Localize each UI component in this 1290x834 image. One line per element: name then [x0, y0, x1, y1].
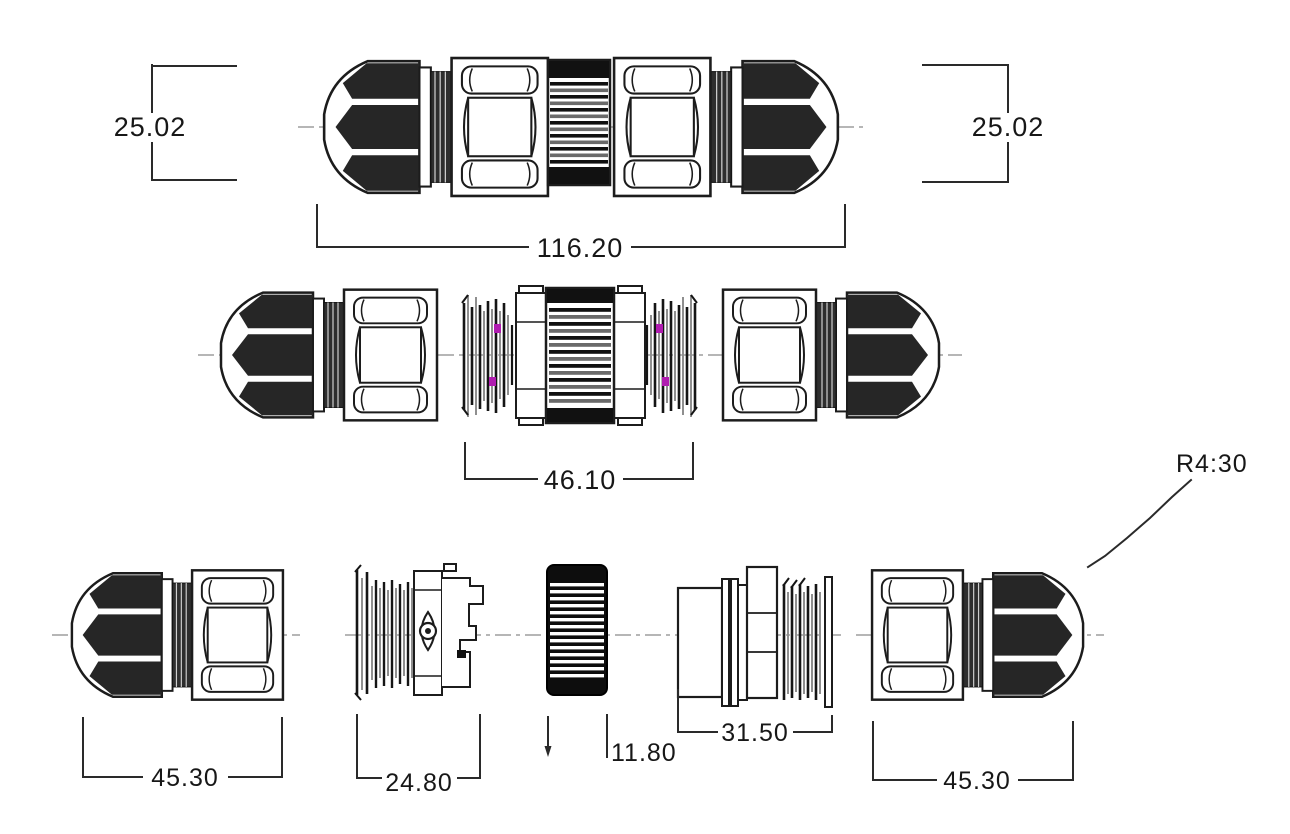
- mated-core-view: 46.10: [198, 286, 962, 495]
- assembled-view: 25.02 25.02 116.20: [114, 58, 1045, 263]
- dim-assembled-height-right-label: 25.02: [972, 112, 1045, 142]
- dim-assembled-height-right: 25.02: [923, 65, 1044, 182]
- dim-assembled-height-left: 25.02: [114, 65, 236, 180]
- panel-socket-part: [678, 567, 832, 707]
- contact-insert-left: [462, 295, 512, 417]
- connector-engineering-drawing: 25.02 25.02 116.20: [0, 0, 1290, 834]
- cable-gland-right: [614, 58, 838, 196]
- dim-core-length-label: 46.10: [544, 465, 617, 495]
- coupling-ring: [548, 60, 610, 185]
- cable-gland-left: [324, 58, 548, 196]
- drawing-page: 25.02 25.02 116.20: [0, 0, 1290, 834]
- socket-thread-spring: [783, 578, 820, 700]
- dim-assembled-length: 116.20: [317, 205, 845, 263]
- knurled-sleeve-part: [547, 565, 607, 695]
- dim-sleeve-diameter: 11.80: [545, 715, 677, 767]
- dim-insert-length: 24.80: [357, 715, 480, 797]
- dim-gland-right: 45.30: [873, 722, 1073, 795]
- core-coupling-body: [516, 286, 645, 425]
- contact-insert-right: [647, 295, 697, 417]
- dim-assembled-length-label: 116.20: [537, 233, 624, 263]
- exploded-view: 45.30 24.80 11.80 31.50 45.30 R4:30: [52, 450, 1248, 797]
- dim-core-length: 46.10: [465, 443, 693, 495]
- dim-assembled-height-left-label: 25.02: [114, 112, 187, 142]
- dim-gland-left-label: 45.30: [151, 764, 219, 792]
- dim-socket-length-label: 31.50: [721, 719, 789, 747]
- dim-gland-right-label: 45.30: [943, 767, 1011, 795]
- dim-gland-left: 45.30: [83, 718, 282, 792]
- cable-gland-part-right: [872, 570, 1083, 699]
- dim-dome-radius-label: R4:30: [1176, 450, 1248, 478]
- dim-insert-length-label: 24.80: [385, 769, 453, 797]
- dim-dome-radius: R4:30: [1088, 450, 1248, 567]
- dim-sleeve-diameter-label: 11.80: [611, 739, 677, 767]
- mated-core-assembly: [462, 286, 697, 425]
- plug-insert-part: [355, 564, 483, 700]
- cable-gland-part-left: [72, 570, 283, 699]
- cable-gland-right-detached: [723, 290, 939, 421]
- cable-gland-left-detached: [221, 290, 437, 421]
